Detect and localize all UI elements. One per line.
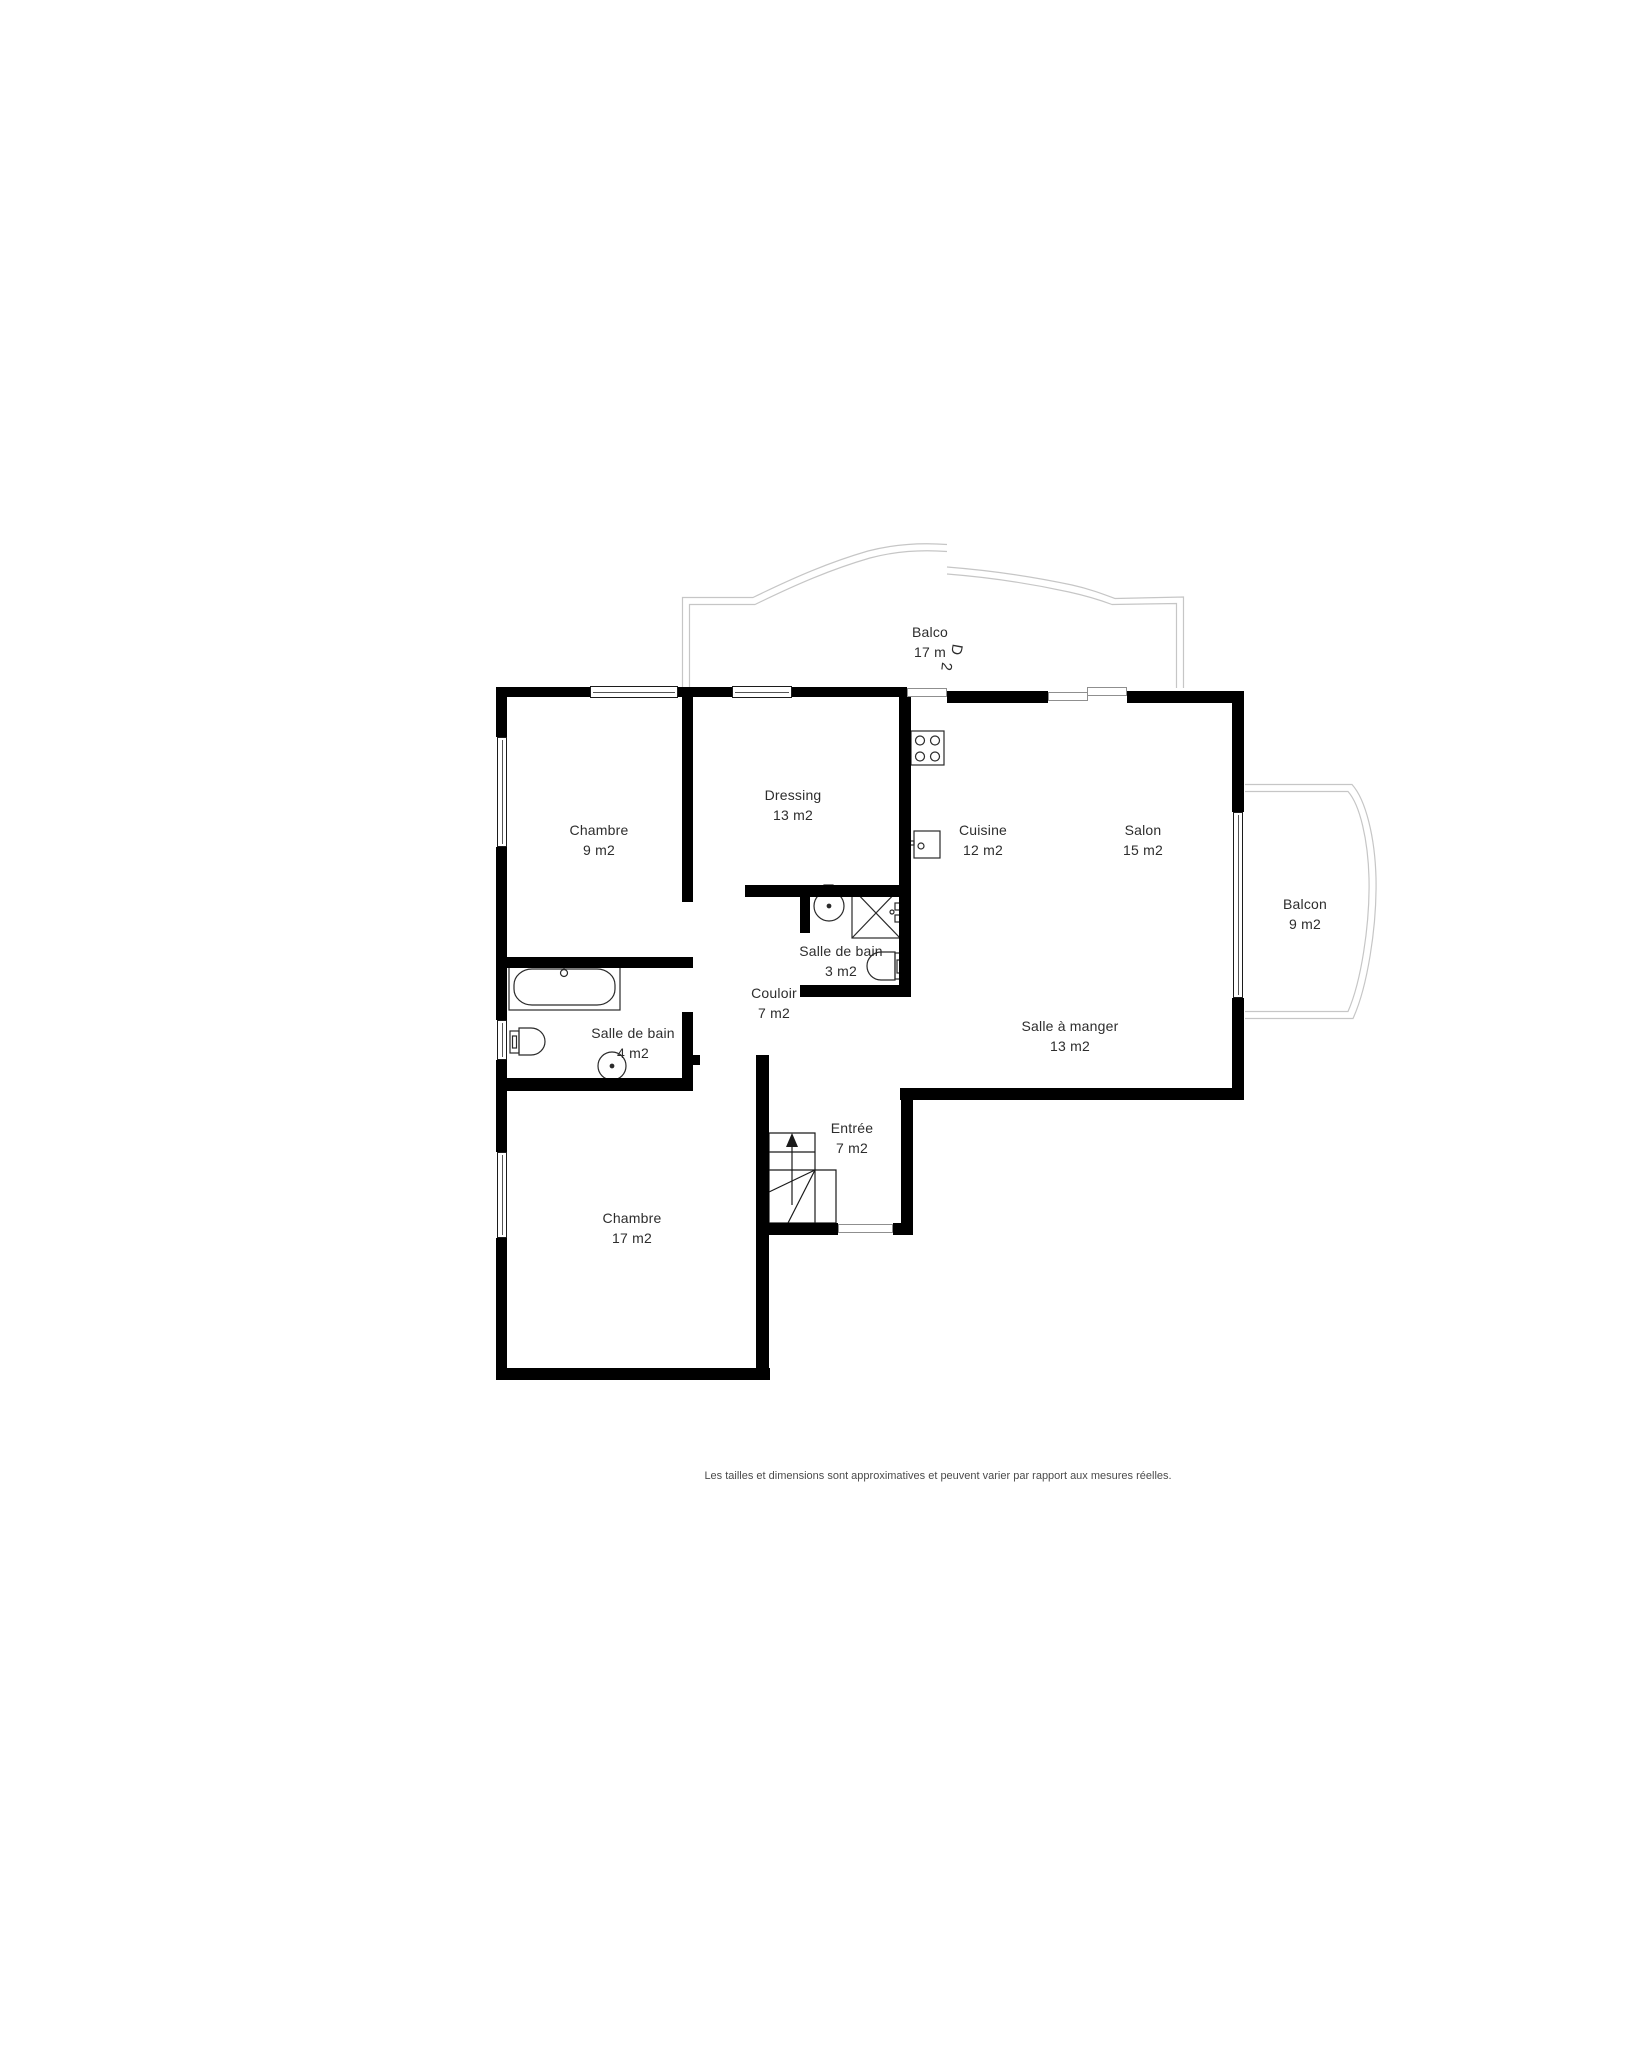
wall-top-right1 — [947, 691, 1048, 703]
wall-dressing-bottom-stub — [682, 885, 693, 897]
wall-dining-bottom — [900, 1088, 1244, 1100]
room-name: Cuisine — [959, 820, 1007, 840]
room-area: 13 m2 — [765, 805, 822, 825]
room-area: 15 m2 — [1123, 840, 1163, 860]
room-name: Entrée — [831, 1118, 873, 1138]
wall-chambre9-dressing-divider — [682, 690, 693, 902]
wall-kitchen-divider — [899, 697, 911, 997]
room-label-salle-de-bain-4: Salle de bain 4 m2 — [591, 1023, 675, 1063]
window-sdb4-left — [497, 1020, 507, 1060]
wall-sdb3-left — [800, 897, 810, 933]
room-label-chambre-9: Chambre 9 m2 — [570, 820, 629, 860]
room-area: 7 m2 — [751, 1003, 797, 1023]
room-area: 9 m2 — [1283, 914, 1327, 934]
wall-entree-corner — [893, 1223, 913, 1235]
stove-icon — [911, 731, 944, 765]
room-name: Salle à manger — [1022, 1016, 1119, 1036]
room-name: Balcon — [1283, 894, 1327, 914]
room-area: 17 m2 — [603, 1228, 662, 1248]
window-balcony-east — [1233, 812, 1243, 998]
window-kitchen-top — [907, 688, 947, 697]
room-name: Couloir — [751, 983, 797, 1003]
wall-right-mid — [1232, 998, 1244, 1099]
room-name: Salon — [1123, 820, 1163, 840]
room-area: 9 m2 — [570, 840, 629, 860]
room-name: Chambre — [603, 1208, 662, 1228]
wall-entree-bottom — [763, 1223, 838, 1235]
window-chambre17-left — [497, 1152, 507, 1238]
room-area: 3 m2 — [799, 961, 883, 981]
room-label-salon: Salon 15 m2 — [1123, 820, 1163, 860]
wall-right-top — [1232, 691, 1244, 812]
wall-left-1 — [496, 687, 507, 737]
room-label-balcon-est: Balcon 9 m2 — [1283, 894, 1327, 934]
room-label-dressing: Dressing 13 m2 — [765, 785, 822, 825]
room-area: 7 m2 — [831, 1138, 873, 1158]
window-dressing-top — [732, 686, 792, 698]
bathtub-icon — [509, 961, 620, 1010]
room-label-salle-a-manger: Salle à manger 13 m2 — [1022, 1016, 1119, 1056]
wall-chambre17-right — [756, 1055, 769, 1380]
room-label-couloir: Couloir 7 m2 — [751, 983, 797, 1023]
window-chambre9-top — [590, 686, 678, 698]
window-chambre9-left — [497, 737, 507, 847]
toilet-icon — [510, 1028, 545, 1055]
wall-chambre9-bottom — [496, 957, 693, 968]
floor-plan-drawing — [0, 0, 1644, 2047]
wall-couloir-left — [682, 1012, 693, 1083]
room-area: 17 m — [912, 642, 948, 662]
wall-left-4 — [496, 1238, 507, 1380]
wall-top-right2 — [1127, 691, 1244, 703]
room-label-entree: Entrée 7 m2 — [831, 1118, 873, 1158]
disclaimer-text: Les tailles et dimensions sont approxima… — [704, 1470, 1171, 1482]
wall-left-3 — [496, 1060, 507, 1152]
wall-entree-right — [901, 1100, 913, 1233]
floor-plan-canvas: Balco 17 m D 2 Chambre 9 m2 Dressing 13 … — [0, 0, 1644, 2047]
wall-left-2 — [496, 847, 507, 1020]
room-label-cuisine: Cuisine 12 m2 — [959, 820, 1007, 860]
wall-chambre17-bottom — [496, 1368, 770, 1380]
glitched-char-2: 2 — [937, 661, 955, 671]
room-area: 4 m2 — [591, 1043, 675, 1063]
kitchen-sink-icon — [908, 831, 940, 858]
room-area: 12 m2 — [959, 840, 1007, 860]
room-name: Balco — [912, 622, 948, 642]
room-label-balcon-nord: Balco 17 m — [912, 622, 948, 662]
wall-top-mid2 — [792, 687, 907, 697]
room-name: Chambre — [570, 820, 629, 840]
balcony-north-outline — [683, 544, 1184, 688]
balcony-door-leaf-1 — [1048, 692, 1088, 701]
room-area: 13 m2 — [1022, 1036, 1119, 1056]
room-name: Salle de bain — [591, 1023, 675, 1043]
wall-sdb4-bottom — [496, 1078, 693, 1091]
room-name: Salle de bain — [799, 941, 883, 961]
room-name: Dressing — [765, 785, 822, 805]
wall-top-left — [496, 687, 590, 697]
balcony-door-leaf-2 — [1087, 687, 1127, 696]
staircase-icon — [769, 1133, 836, 1223]
room-label-salle-de-bain-3: Salle de bain 3 m2 — [799, 941, 883, 981]
wall-sdb3-bottom — [800, 985, 911, 997]
room-label-chambre-17: Chambre 17 m2 — [603, 1208, 662, 1248]
wall-sdb3-top — [745, 885, 911, 897]
front-door-leaf — [838, 1224, 893, 1233]
